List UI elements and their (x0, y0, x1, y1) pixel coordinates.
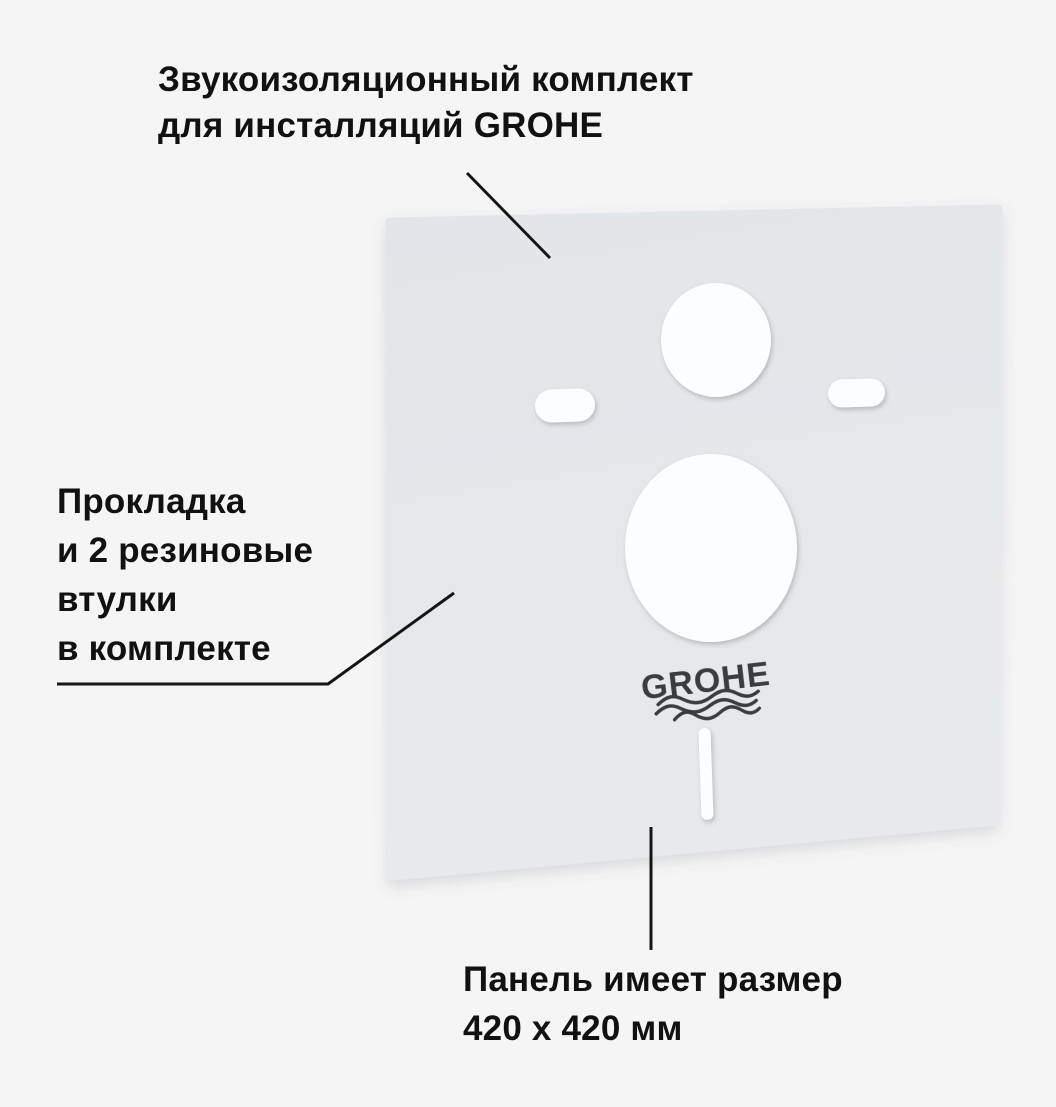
left-annotation-line-3: втулки (57, 575, 313, 624)
left-pill-cutout (534, 388, 595, 423)
top-annotation: Звукоизоляционный комплект для инсталляц… (158, 57, 694, 149)
bottom-annotation-line-2: 420 x 420 мм (463, 1004, 843, 1053)
left-annotation-line-1: Прокладка (57, 477, 313, 526)
bottom-annotation: Панель имеет размер 420 x 420 мм (463, 955, 843, 1053)
left-annotation: Прокладка и 2 резиновые втулки в комплек… (57, 477, 313, 673)
top-circle-cutout (661, 283, 771, 397)
right-pill-cutout (828, 378, 886, 408)
left-annotation-line-4: в комплекте (57, 624, 313, 673)
product-infographic: GROHE Звукоизоляционный комплект для инс… (0, 0, 1056, 1107)
top-annotation-line-2: для инсталляций GROHE (158, 103, 694, 149)
top-annotation-line-1: Звукоизоляционный комплект (158, 57, 694, 103)
left-annotation-line-2: и 2 резиновые (57, 526, 313, 575)
large-circle-cutout (625, 454, 797, 642)
bottom-annotation-line-1: Панель имеет размер (463, 955, 843, 1004)
